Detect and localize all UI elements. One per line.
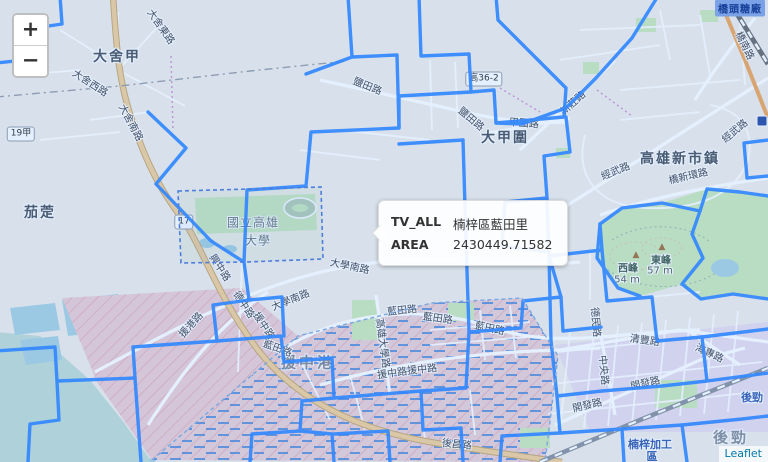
tooltip-value: 2430449.71582 <box>453 237 552 252</box>
tooltip-value: 楠梓區藍田里 <box>453 214 528 233</box>
zoom-control: + − <box>12 13 49 78</box>
feature-tooltip: TV_ALL 楠梓區藍田里 AREA 2430449.71582 <box>378 200 568 266</box>
tooltip-key: AREA <box>391 237 453 252</box>
zoom-in-button[interactable]: + <box>14 15 47 46</box>
leaflet-link[interactable]: Leaflet <box>725 447 762 460</box>
attribution: Leaflet <box>719 446 768 462</box>
tooltip-row: TV_ALL 楠梓區藍田里 <box>391 214 555 233</box>
tooltip-key: TV_ALL <box>391 214 453 233</box>
map-canvas[interactable]: 大舍甲茄萣高雄新市鎮大甲圍援中港後勁國立高雄大學後勁楠梓加工區▲西峰54 m▲東… <box>0 0 768 462</box>
tooltip-row: AREA 2430449.71582 <box>391 237 555 252</box>
zoom-out-button[interactable]: − <box>14 46 47 76</box>
